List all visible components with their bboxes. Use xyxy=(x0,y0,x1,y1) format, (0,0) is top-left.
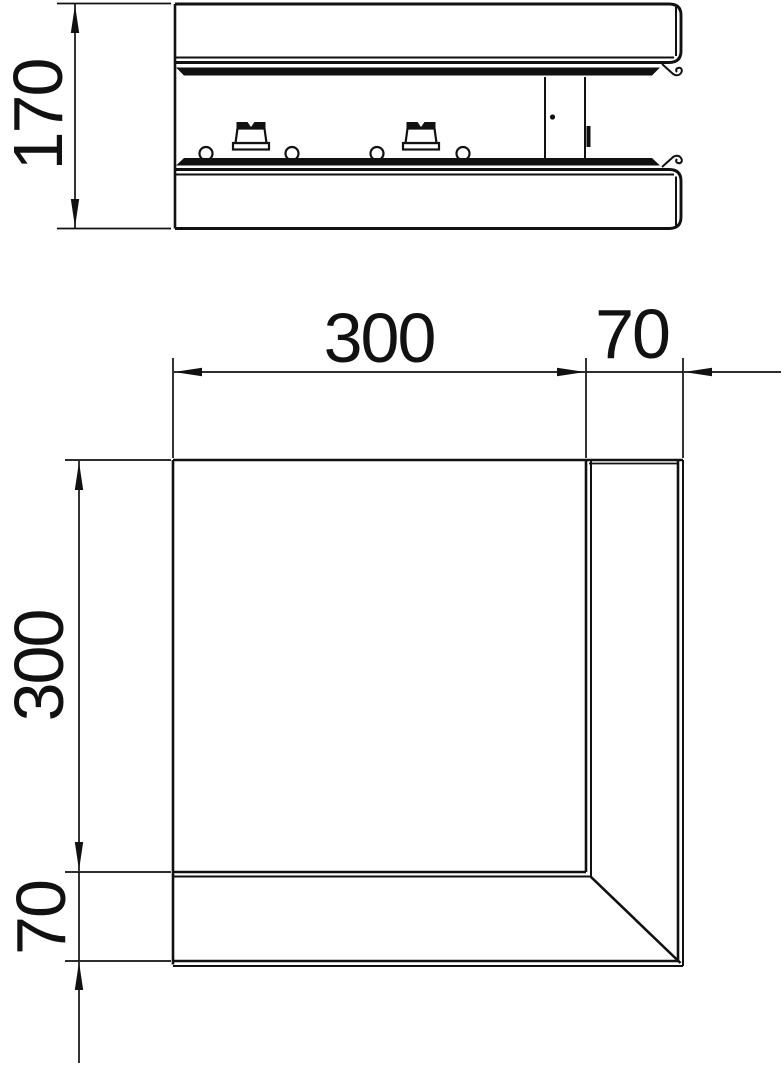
plan-bottom-wall xyxy=(173,872,683,966)
dim-label-300-top: 300 xyxy=(324,299,435,377)
dim-height-170: 170 xyxy=(0,4,171,229)
upper-rail-hook xyxy=(662,64,682,75)
top-cover-outline xyxy=(175,4,681,63)
bottom-cover-outline xyxy=(175,170,681,229)
dim-arrow-up-pointing xyxy=(75,962,83,990)
dim-label-70-top: 70 xyxy=(595,295,669,373)
dim-left-300: 300 xyxy=(0,460,171,872)
dim-left-70: 70 xyxy=(2,872,171,1063)
dim-label-300-left: 300 xyxy=(0,611,78,722)
upper-rail xyxy=(176,64,682,76)
bottom-cover-profile xyxy=(175,170,681,229)
technical-drawing-page: 170 300 xyxy=(0,0,784,1066)
plan-view: 300 70 300 70 xyxy=(0,295,781,1063)
mounting-clip-2 xyxy=(403,122,439,150)
dim-label-170: 170 xyxy=(0,60,77,171)
upper-rail-band xyxy=(176,68,660,76)
clip-body xyxy=(406,129,437,144)
top-cover-profile xyxy=(175,4,681,63)
dim-arrow-right xyxy=(557,368,585,376)
dim-label-70-left: 70 xyxy=(2,881,80,955)
dim-top-300: 300 xyxy=(173,299,586,458)
dim-arrow-up xyxy=(75,462,83,490)
dim-arrow-down xyxy=(75,842,83,870)
partition-dot xyxy=(550,114,555,119)
lower-rail-band xyxy=(176,158,660,166)
lower-rail-hook xyxy=(662,156,682,167)
mounting-clip-1 xyxy=(233,122,269,150)
miter-diagonal xyxy=(590,876,681,963)
partition-latch-tick xyxy=(587,126,591,147)
trunking-flat-angle-drawing: 170 300 xyxy=(0,0,784,1066)
dim-arrow-down xyxy=(71,199,79,227)
lower-rail xyxy=(176,156,682,167)
dim-arrow-up xyxy=(71,5,79,33)
clip-body xyxy=(236,129,267,144)
side-view: 170 xyxy=(0,4,682,229)
dim-arrow-left xyxy=(174,368,202,376)
dim-top-70: 70 xyxy=(586,295,781,458)
partition xyxy=(545,77,591,158)
dim-arrow-left-pointing xyxy=(684,368,712,376)
plan-right-wall xyxy=(586,460,683,966)
